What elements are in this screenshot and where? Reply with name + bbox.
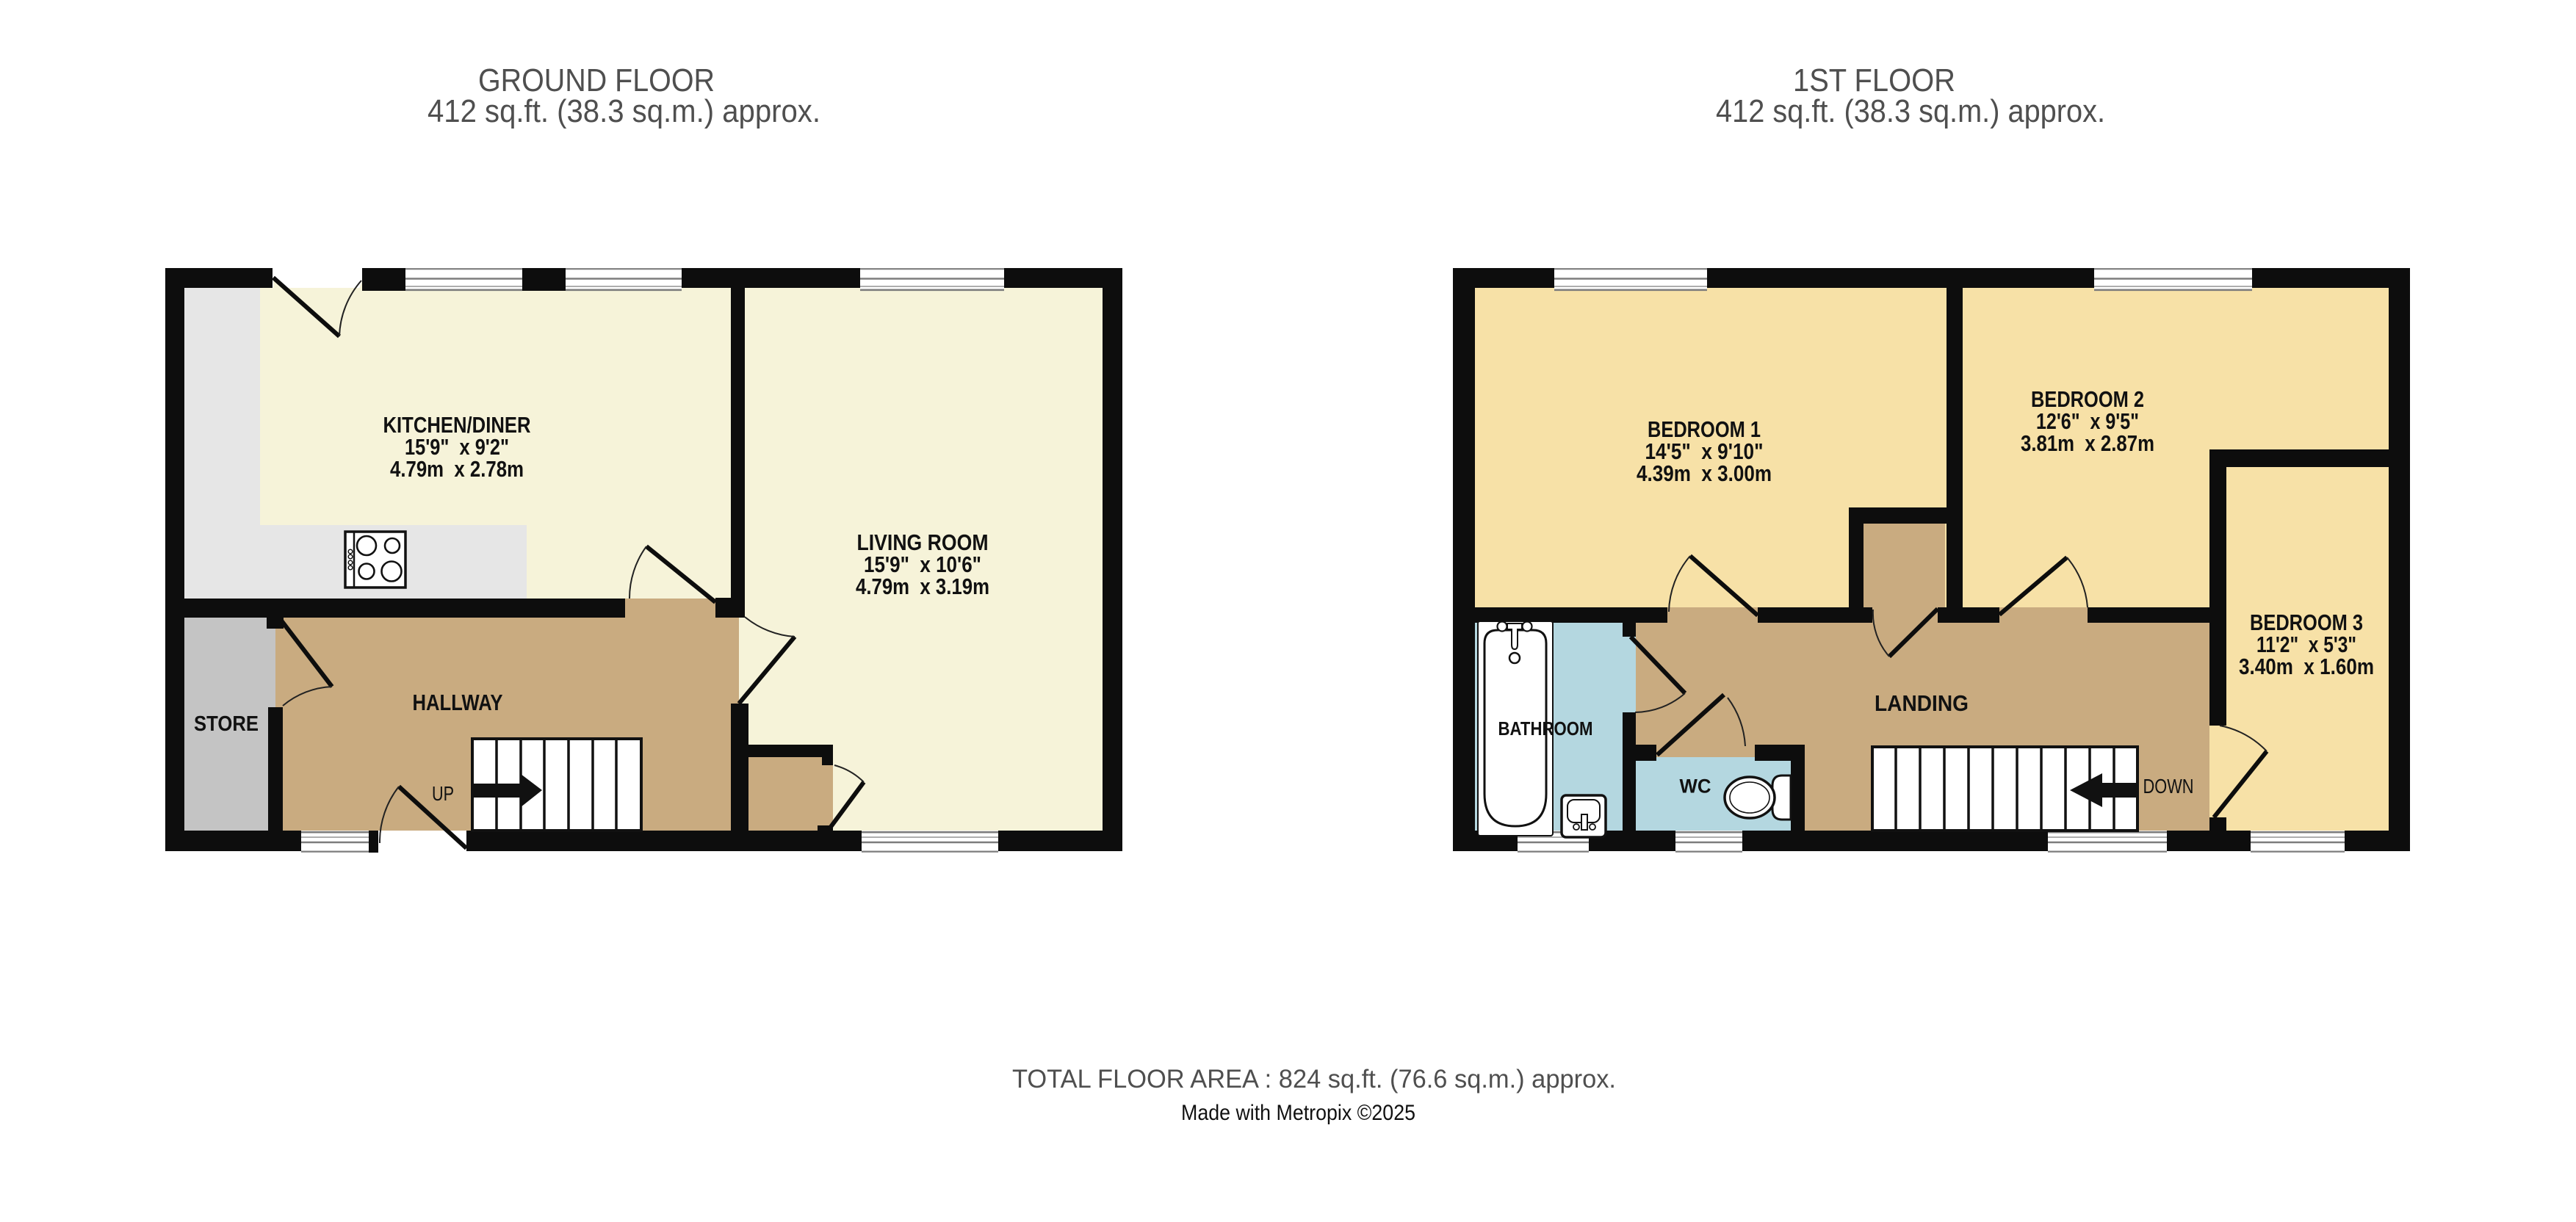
svg-text:3.81m x 2.87m: 3.81m x 2.87m — [2021, 430, 2154, 456]
svg-text:4.79m x 2.78m: 4.79m x 2.78m — [390, 456, 524, 482]
svg-text:LANDING: LANDING — [1875, 690, 1969, 716]
svg-text:3.40m x 1.60m: 3.40m x 1.60m — [2239, 654, 2374, 679]
svg-text:HALLWAY: HALLWAY — [413, 690, 503, 715]
svg-text:4.39m x 3.00m: 4.39m x 3.00m — [1637, 460, 1772, 486]
svg-text:STORE: STORE — [194, 712, 259, 736]
svg-text:DOWN: DOWN — [2143, 775, 2194, 798]
svg-text:TOTAL FLOOR AREA : 824 sq.ft.: TOTAL FLOOR AREA : 824 sq.ft. (76.6 sq.m… — [1012, 1065, 1616, 1093]
svg-text:412 sq.ft. (38.3 sq.m.) approx: 412 sq.ft. (38.3 sq.m.) approx. — [1716, 93, 2105, 129]
svg-text:BATHROOM: BATHROOM — [1498, 717, 1593, 740]
svg-text:4.79m x 3.19m: 4.79m x 3.19m — [856, 574, 989, 599]
svg-text:412 sq.ft. (38.3 sq.m.) approx: 412 sq.ft. (38.3 sq.m.) approx. — [427, 93, 820, 129]
svg-text:WC: WC — [1680, 775, 1711, 797]
svg-text:UP: UP — [432, 782, 454, 805]
svg-text:Made with Metropix ©2025: Made with Metropix ©2025 — [1181, 1101, 1415, 1125]
